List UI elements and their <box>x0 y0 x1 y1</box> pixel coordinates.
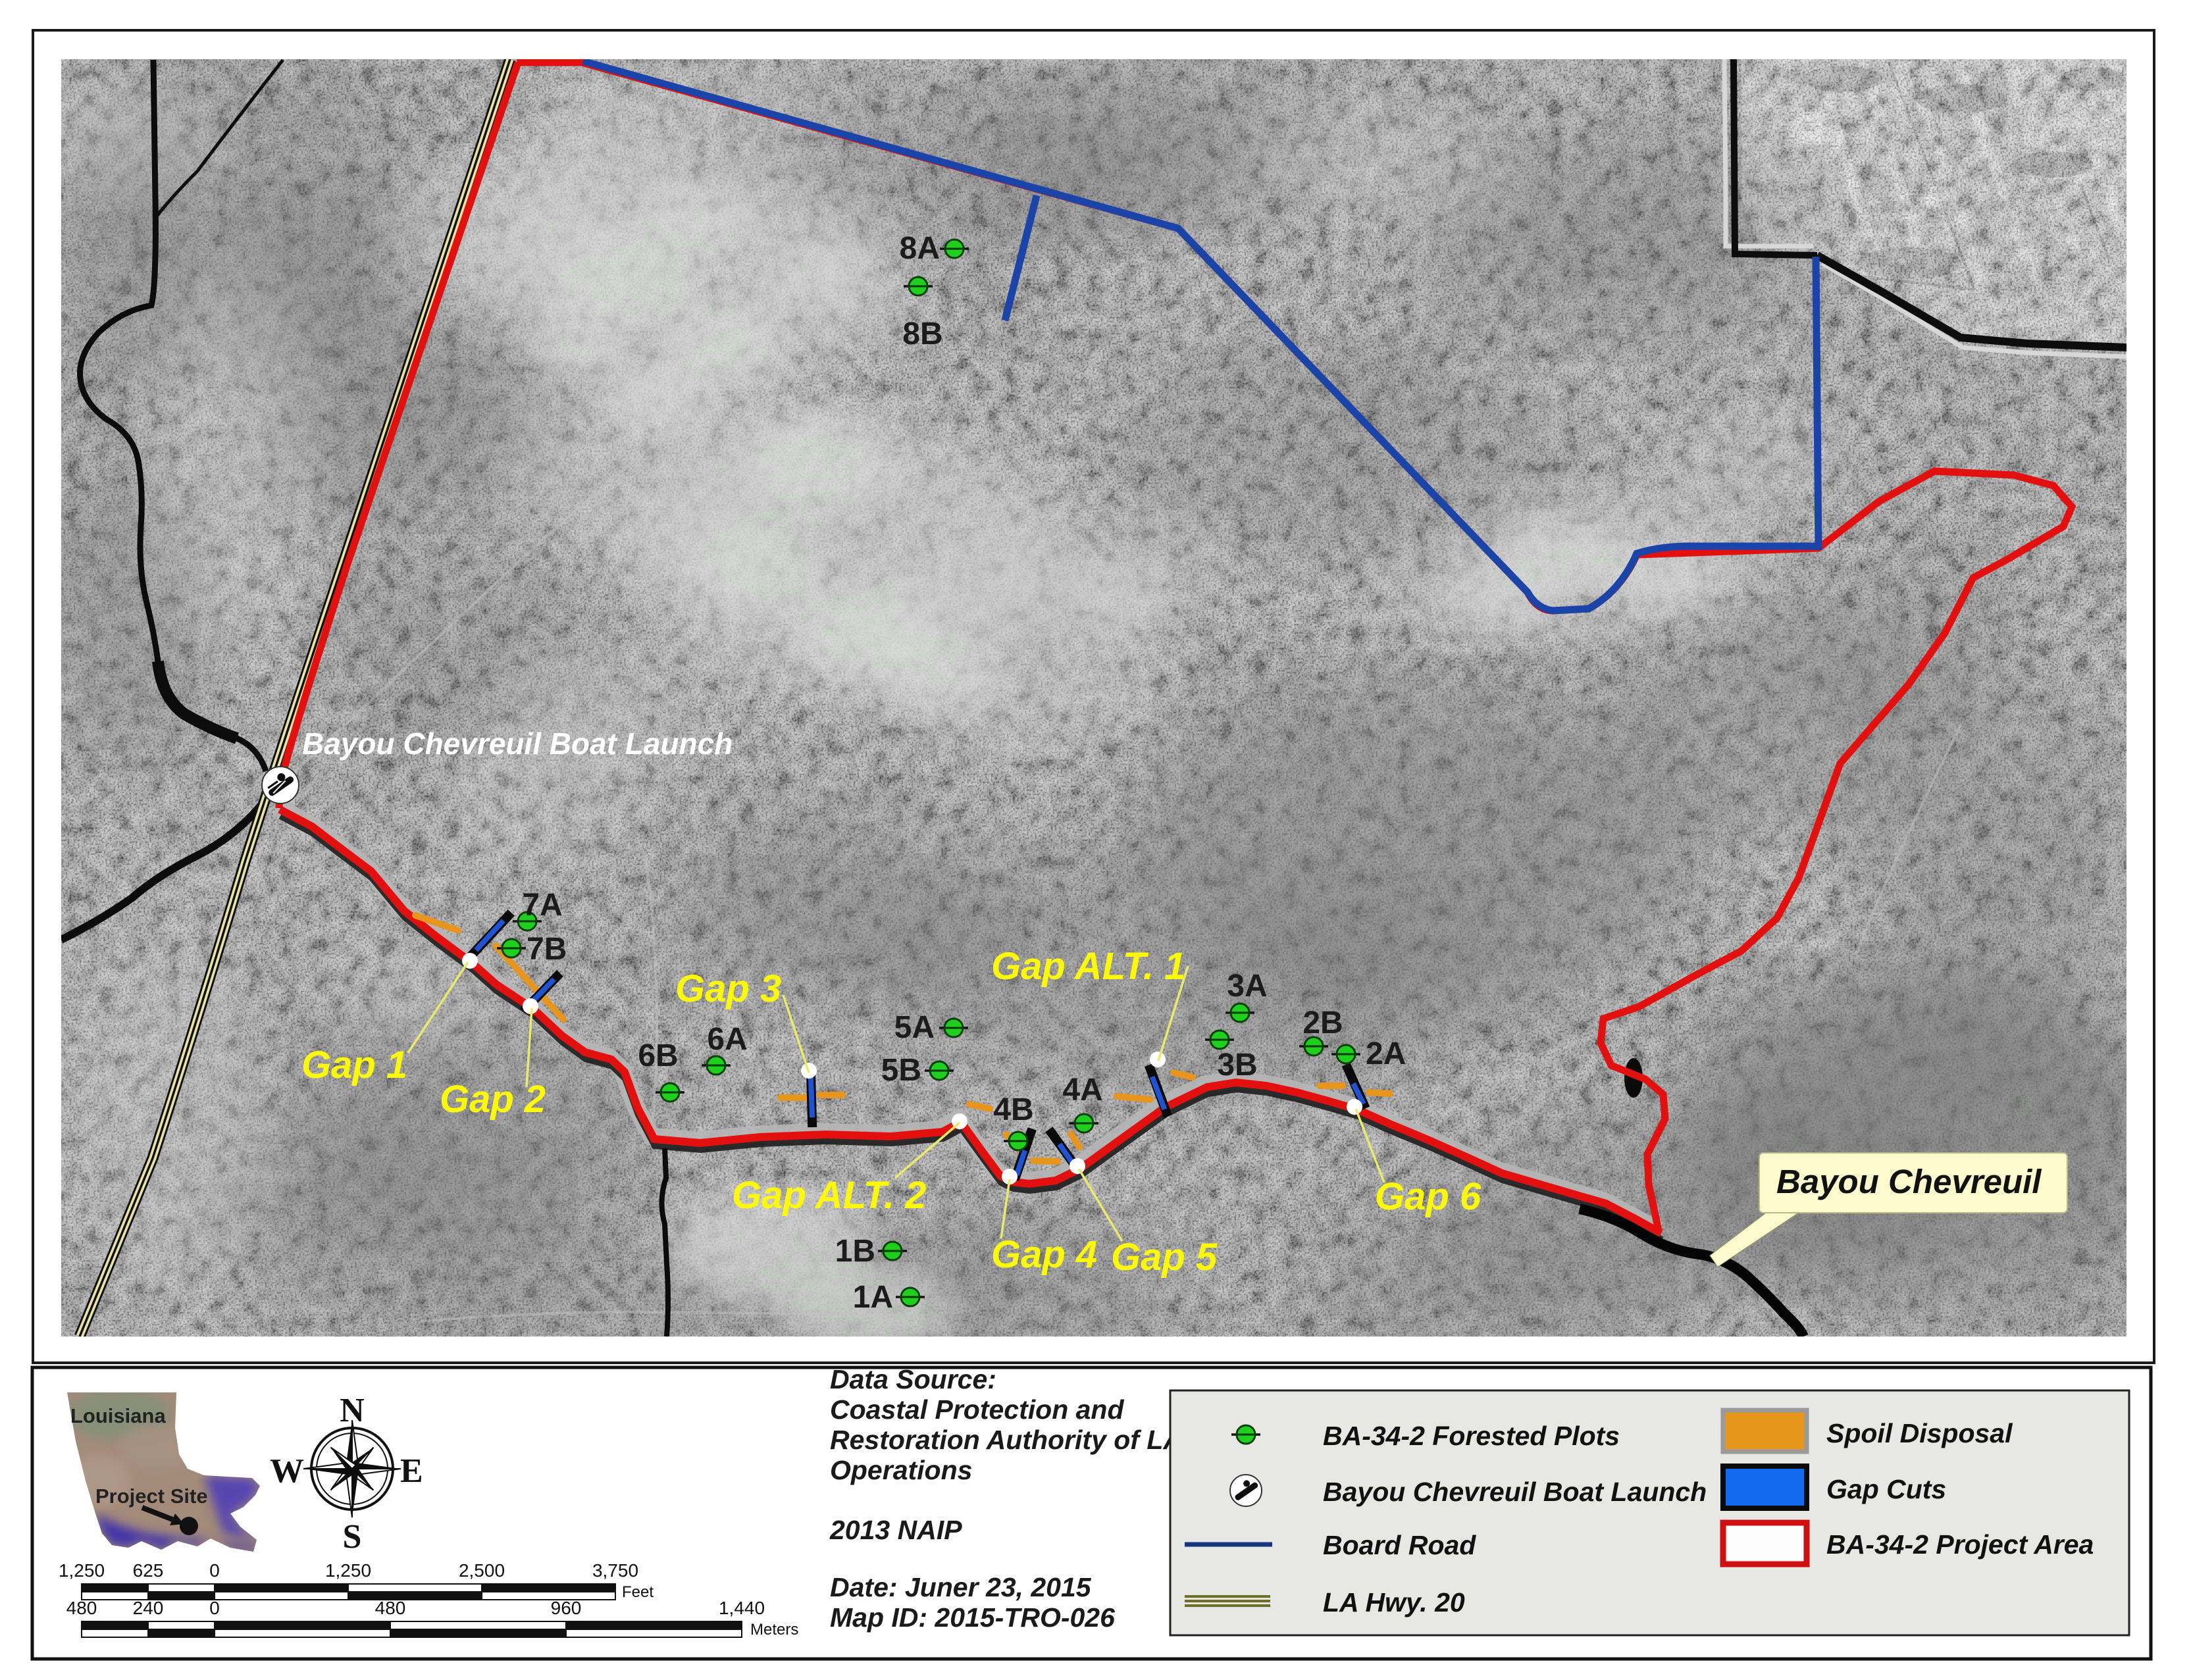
svg-text:2,500: 2,500 <box>459 1560 505 1581</box>
svg-text:4B: 4B <box>993 1092 1033 1127</box>
svg-text:Gap 6: Gap 6 <box>1375 1175 1482 1218</box>
svg-text:N: N <box>340 1392 365 1429</box>
svg-text:Meters: Meters <box>750 1621 798 1639</box>
svg-text:5B: 5B <box>881 1053 921 1088</box>
svg-text:BA-34-2 Project Area: BA-34-2 Project Area <box>1826 1529 2094 1560</box>
svg-text:8A: 8A <box>900 231 940 266</box>
svg-text:4A: 4A <box>1062 1073 1102 1107</box>
svg-text:Data Source:: Data Source: <box>830 1364 996 1394</box>
svg-text:Bayou Chevreuil: Bayou Chevreuil <box>1776 1163 2042 1200</box>
svg-text:480: 480 <box>375 1598 406 1618</box>
svg-text:7A: 7A <box>522 888 562 923</box>
svg-text:BA-34-2 Forested Plots: BA-34-2 Forested Plots <box>1323 1421 1620 1451</box>
svg-text:960: 960 <box>551 1598 582 1618</box>
svg-text:Board Road: Board Road <box>1323 1530 1476 1560</box>
svg-text:3A: 3A <box>1227 969 1267 1004</box>
svg-text:Feet: Feet <box>622 1583 654 1601</box>
svg-text:Gap 1: Gap 1 <box>301 1044 407 1086</box>
svg-text:3,750: 3,750 <box>592 1560 638 1581</box>
svg-text:S: S <box>343 1518 362 1556</box>
svg-text:1,440: 1,440 <box>719 1598 765 1618</box>
svg-text:Gap 4: Gap 4 <box>991 1233 1097 1276</box>
svg-text:1A: 1A <box>853 1280 893 1315</box>
svg-text:Project Site: Project Site <box>95 1485 208 1508</box>
svg-text:Bayou Chevreuil Boat Launch: Bayou Chevreuil Boat Launch <box>1323 1477 1707 1507</box>
svg-text:Gap 3: Gap 3 <box>675 967 781 1010</box>
svg-text:5A: 5A <box>894 1010 935 1045</box>
svg-text:Map ID: 2015-TRO-026: Map ID: 2015-TRO-026 <box>830 1602 1116 1633</box>
svg-text:Louisiana: Louisiana <box>70 1404 166 1427</box>
svg-text:Gap ALT. 1: Gap ALT. 1 <box>991 945 1185 988</box>
svg-text:1,250: 1,250 <box>325 1560 371 1581</box>
svg-text:E: E <box>400 1452 423 1490</box>
svg-text:Gap 2: Gap 2 <box>440 1078 546 1121</box>
svg-text:2013 NAIP: 2013 NAIP <box>829 1515 962 1545</box>
svg-text:Spoil Disposal: Spoil Disposal <box>1826 1418 2013 1448</box>
svg-text:0: 0 <box>209 1598 220 1618</box>
svg-text:3B: 3B <box>1217 1048 1257 1082</box>
svg-text:480: 480 <box>66 1598 97 1618</box>
svg-text:Operations: Operations <box>830 1455 972 1485</box>
svg-text:Restoration Authority of LA: Restoration Authority of LA <box>830 1425 1183 1455</box>
svg-text:W: W <box>270 1452 304 1490</box>
svg-text:Date: Juner 23, 2015: Date: Juner 23, 2015 <box>830 1572 1092 1602</box>
svg-text:8B: 8B <box>902 317 942 351</box>
svg-text:6A: 6A <box>707 1022 747 1057</box>
svg-text:Coastal Protection and: Coastal Protection and <box>830 1394 1124 1425</box>
svg-text:Gap ALT. 2: Gap ALT. 2 <box>732 1174 926 1217</box>
svg-text:0: 0 <box>209 1560 220 1581</box>
svg-text:625: 625 <box>133 1560 164 1581</box>
svg-text:Bayou Chevreuil Boat Launch: Bayou Chevreuil Boat Launch <box>302 726 733 761</box>
svg-text:LA Hwy. 20: LA Hwy. 20 <box>1323 1587 1465 1617</box>
svg-text:240: 240 <box>133 1598 164 1618</box>
svg-text:7B: 7B <box>527 932 567 967</box>
svg-text:1B: 1B <box>835 1234 875 1269</box>
svg-text:Gap 5: Gap 5 <box>1111 1236 1218 1279</box>
svg-text:2A: 2A <box>1366 1036 1406 1071</box>
svg-text:6B: 6B <box>638 1038 678 1073</box>
svg-text:Gap Cuts: Gap Cuts <box>1826 1474 1946 1504</box>
svg-text:1,250: 1,250 <box>59 1560 105 1581</box>
svg-text:2B: 2B <box>1302 1005 1343 1040</box>
